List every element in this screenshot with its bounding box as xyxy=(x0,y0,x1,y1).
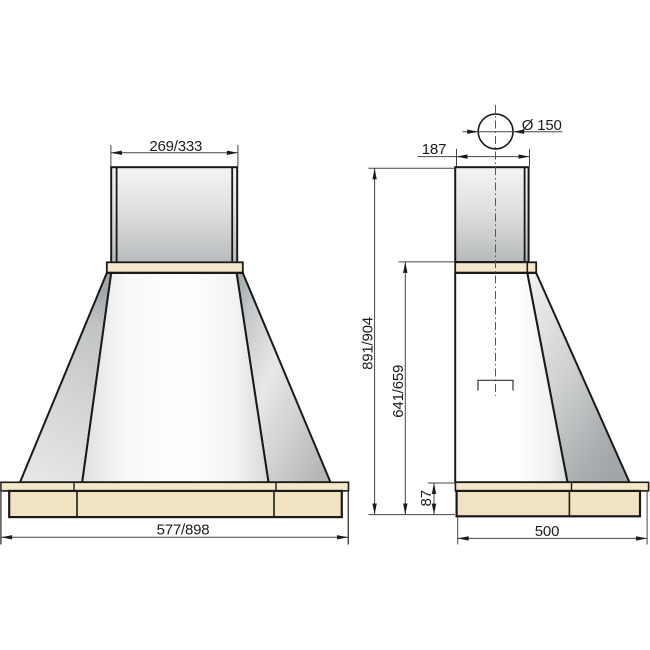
svg-text:891/904: 891/904 xyxy=(359,317,376,370)
svg-text:641/659: 641/659 xyxy=(390,365,407,418)
svg-text:Ø 150: Ø 150 xyxy=(522,117,562,134)
svg-text:269/333: 269/333 xyxy=(149,138,202,155)
svg-text:500: 500 xyxy=(535,523,559,540)
svg-text:187: 187 xyxy=(422,141,446,158)
svg-text:87: 87 xyxy=(418,490,435,506)
svg-text:577/898: 577/898 xyxy=(157,522,210,539)
